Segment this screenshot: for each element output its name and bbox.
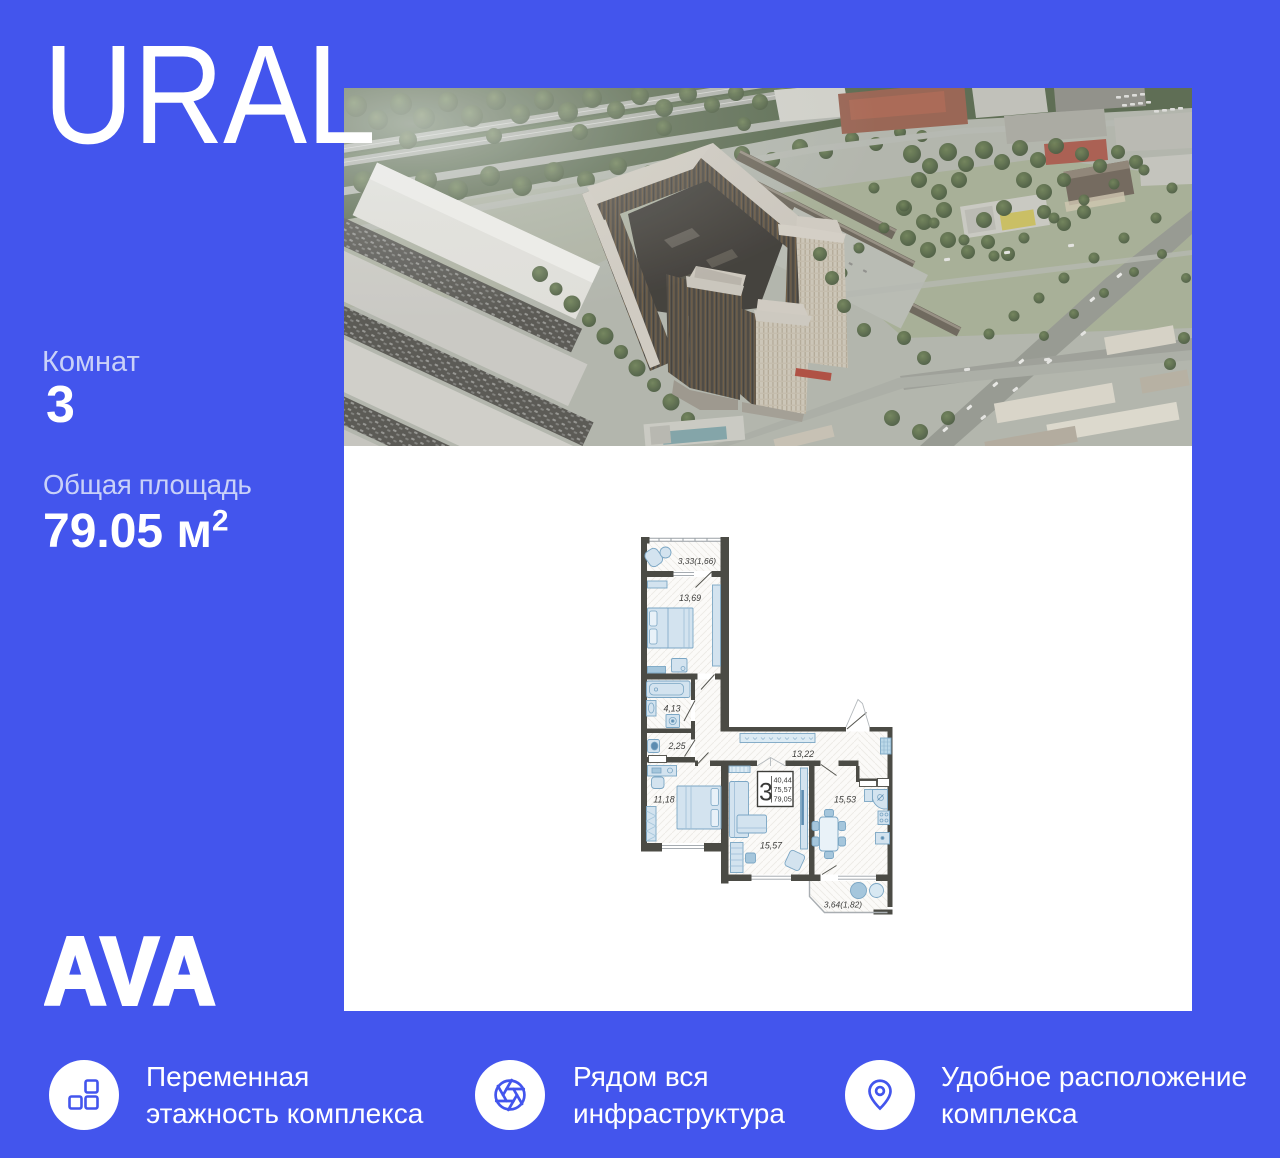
svg-text:13,69: 13,69: [679, 593, 701, 603]
svg-text:2,25: 2,25: [667, 741, 685, 751]
svg-text:75,57: 75,57: [774, 785, 792, 794]
svg-text:3,33(1,66): 3,33(1,66): [678, 556, 716, 566]
svg-text:11,18: 11,18: [653, 795, 674, 805]
svg-text:3,64(1,82): 3,64(1,82): [824, 900, 862, 910]
svg-text:15,53: 15,53: [834, 795, 856, 805]
svg-text:13,22: 13,22: [792, 749, 814, 759]
svg-text:40,44: 40,44: [774, 776, 792, 785]
svg-text:15,57: 15,57: [760, 841, 783, 851]
svg-text:4,13: 4,13: [663, 704, 680, 714]
svg-text:3: 3: [759, 779, 773, 807]
svg-text:79,05: 79,05: [774, 795, 792, 804]
